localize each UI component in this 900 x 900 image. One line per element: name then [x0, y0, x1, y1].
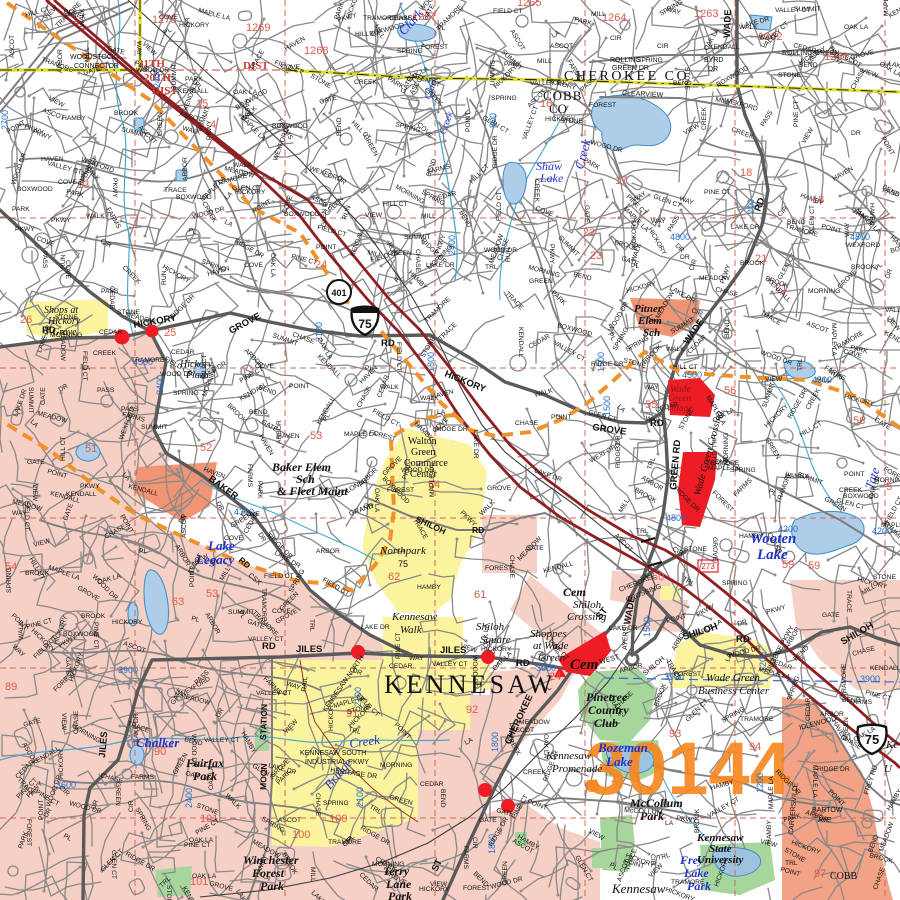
svg-text:ARBOR: ARBOR — [276, 420, 283, 444]
svg-text:PINE CT: PINE CT — [395, 633, 402, 659]
svg-text:COVE: COVE — [244, 262, 263, 269]
svg-text:RIDGE DR: RIDGE DR — [435, 426, 468, 433]
svg-text:51: 51 — [85, 443, 97, 455]
svg-text:BOXWOOD: BOXWOOD — [176, 194, 212, 201]
svg-text:PARK: PARK — [256, 481, 263, 499]
svg-text:HILL CT: HILL CT — [710, 435, 717, 460]
svg-text:SPRING: SPRING — [173, 390, 199, 397]
svg-text:GREEN: GREEN — [114, 782, 121, 806]
svg-text:KENDALL: KENDALL — [517, 327, 524, 358]
svg-text:Shoppes: Shoppes — [530, 628, 567, 640]
svg-text:Cem: Cem — [570, 657, 598, 673]
svg-text:STONE: STONE — [684, 546, 707, 553]
svg-text:1200: 1200 — [755, 773, 765, 793]
svg-text:Bozeman: Bozeman — [597, 740, 648, 755]
svg-text:CIR: CIR — [657, 43, 669, 50]
svg-text:VIEW: VIEW — [60, 713, 67, 731]
svg-text:SPRING: SPRING — [6, 567, 13, 593]
svg-text:17: 17 — [615, 175, 627, 187]
svg-text:MILL: MILL — [816, 377, 831, 384]
svg-text:GREEN DR: GREEN DR — [612, 65, 649, 72]
svg-text:MORNING: MORNING — [723, 433, 730, 465]
svg-text:MILL: MILL — [591, 11, 606, 18]
svg-text:PKWY: PKWY — [15, 226, 35, 233]
svg-text:TRL: TRL — [485, 264, 498, 271]
svg-text:RD: RD — [736, 634, 750, 645]
svg-text:POINT: POINT — [189, 567, 196, 587]
svg-text:Wade Green: Wade Green — [706, 672, 760, 684]
svg-text:HICKORY: HICKORY — [419, 886, 450, 893]
svg-text:18: 18 — [740, 167, 752, 179]
svg-text:MAPLE LA: MAPLE LA — [429, 464, 436, 497]
svg-text:1263: 1263 — [694, 8, 718, 20]
svg-text:BEND: BEND — [724, 319, 731, 338]
svg-text:100: 100 — [292, 829, 310, 841]
svg-text:SUMMIT: SUMMIT — [141, 424, 167, 431]
svg-text:BEND: BEND — [799, 62, 818, 69]
svg-text:HILL CT: HILL CT — [355, 31, 380, 38]
svg-text:MEADOW: MEADOW — [519, 719, 551, 726]
svg-text:WAY: WAY — [409, 655, 424, 662]
svg-text:MEADOW: MEADOW — [699, 275, 731, 282]
svg-text:STATION: STATION — [258, 704, 269, 740]
svg-text:GATE: GATE — [40, 387, 47, 405]
svg-text:BROOK: BROOK — [851, 264, 876, 271]
svg-text:COBB: COBB — [830, 871, 858, 882]
svg-text:DR: DR — [364, 503, 374, 510]
svg-text:TRL: TRL — [308, 619, 315, 632]
svg-text:MAPLE LA: MAPLE LA — [708, 465, 741, 472]
svg-text:FIELD CT: FIELD CT — [264, 573, 294, 580]
svg-text:SUMMIT: SUMMIT — [404, 234, 430, 241]
svg-text:ARBOR: ARBOR — [316, 548, 340, 555]
svg-text:1500: 1500 — [642, 617, 652, 637]
svg-text:MAPLE LA: MAPLE LA — [768, 776, 775, 809]
svg-text:WALK: WALK — [233, 162, 252, 169]
svg-text:CIR: CIR — [610, 35, 622, 42]
svg-text:2400: 2400 — [184, 788, 194, 808]
svg-text:WALK: WALK — [86, 213, 105, 220]
svg-text:VIEW: VIEW — [31, 484, 38, 502]
svg-text:200: 200 — [746, 199, 756, 214]
svg-text:MAPLE LA: MAPLE LA — [883, 0, 890, 16]
svg-text:VALLEY CT: VALLEY CT — [432, 661, 467, 668]
svg-text:SUMMIT: SUMMIT — [27, 387, 34, 413]
svg-text:LAKE DR: LAKE DR — [133, 713, 140, 742]
svg-text:MILL: MILL — [84, 47, 91, 62]
svg-text:WAY: WAY — [844, 222, 851, 237]
svg-text:WOOD DR: WOOD DR — [190, 734, 197, 767]
svg-text:23: 23 — [590, 250, 602, 262]
svg-text:Ke: Ke — [885, 739, 898, 751]
svg-text:56: 56 — [853, 415, 865, 427]
svg-text:WEXFORD: WEXFORD — [846, 242, 880, 249]
svg-text:1800: 1800 — [490, 732, 500, 752]
svg-text:PINE CT: PINE CT — [184, 842, 210, 849]
svg-text:GLEN CT: GLEN CT — [809, 205, 816, 234]
svg-text:LAKE DR: LAKE DR — [361, 624, 390, 631]
svg-text:KENDALL: KENDALL — [709, 44, 740, 51]
svg-text:HILL CT: HILL CT — [383, 201, 408, 208]
svg-text:OAK LA: OAK LA — [542, 734, 549, 759]
svg-text:COVE: COVE — [159, 14, 178, 21]
svg-text:GATE: GATE — [27, 459, 45, 466]
svg-text:FARMS: FARMS — [246, 464, 253, 488]
svg-text:4800: 4800 — [670, 232, 690, 242]
svg-text:59: 59 — [808, 560, 820, 572]
svg-text:OAK LA: OAK LA — [483, 623, 490, 648]
svg-text:WOODSTOCK: WOODSTOCK — [70, 54, 117, 61]
svg-text:FOREST: FOREST — [421, 44, 448, 51]
svg-text:RIDGE DR: RIDGE DR — [817, 766, 850, 773]
svg-text:RIDGE DR: RIDGE DR — [591, 361, 624, 368]
svg-text:DR: DR — [708, 66, 718, 73]
svg-text:ARBOR: ARBOR — [182, 157, 189, 181]
svg-text:HICKORY: HICKORY — [58, 748, 65, 779]
svg-text:COVE: COVE — [281, 64, 300, 71]
svg-text:59: 59 — [782, 559, 794, 571]
svg-text:90: 90 — [154, 746, 166, 758]
svg-text:BOXWOOD: BOXWOOD — [17, 186, 53, 193]
svg-text:53: 53 — [310, 430, 322, 442]
svg-text:HILL CT: HILL CT — [60, 436, 67, 461]
svg-text:RD: RD — [516, 658, 530, 669]
svg-text:PINE CT: PINE CT — [704, 189, 730, 196]
svg-text:PKWY: PKWY — [548, 244, 555, 264]
svg-text:3900: 3900 — [536, 663, 556, 673]
svg-text:POINT: POINT — [289, 383, 309, 390]
svg-text:TRACE: TRACE — [164, 187, 187, 194]
svg-text:CREEK: CREEK — [93, 350, 117, 357]
svg-text:SPRING: SPRING — [722, 580, 748, 587]
svg-text:BROOK: BROOK — [740, 260, 765, 267]
svg-text:CHASE: CHASE — [414, 249, 421, 273]
svg-text:CIR: CIR — [471, 837, 478, 849]
svg-text:1269: 1269 — [246, 22, 270, 34]
svg-text:MORNING: MORNING — [380, 762, 412, 769]
svg-text:Lake: Lake — [539, 171, 564, 185]
svg-text:CREEK: CREEK — [701, 106, 708, 130]
svg-text:STONE: STONE — [560, 118, 583, 125]
svg-text:PINE CT: PINE CT — [793, 101, 800, 127]
svg-text:401: 401 — [331, 288, 346, 298]
svg-text:Promenade: Promenade — [551, 763, 602, 775]
svg-text:CHASE: CHASE — [389, 15, 413, 22]
svg-text:WADE: WADE — [722, 9, 734, 38]
svg-text:OAK LA: OAK LA — [233, 89, 258, 96]
svg-text:FOREST: FOREST — [485, 565, 512, 572]
svg-text:KENDALL: KENDALL — [870, 665, 900, 672]
svg-text:CEDAR: CEDAR — [171, 349, 195, 356]
svg-text:VALLEY CT: VALLEY CT — [248, 636, 283, 643]
svg-text:STONE: STONE — [873, 574, 896, 581]
svg-text:52: 52 — [200, 442, 212, 454]
svg-text:3900: 3900 — [860, 674, 880, 684]
svg-text:BROOK: BROOK — [694, 808, 701, 833]
svg-text:ASCOT: ASCOT — [550, 43, 573, 50]
svg-text:DR: DR — [851, 130, 861, 137]
svg-text:TRAMORE: TRAMORE — [841, 663, 848, 697]
svg-text:56: 56 — [724, 385, 736, 397]
svg-text:61: 61 — [474, 589, 486, 601]
svg-text:OAK LA: OAK LA — [844, 24, 869, 31]
svg-text:OAK LA: OAK LA — [373, 488, 380, 513]
svg-text:LAKE DR: LAKE DR — [472, 430, 479, 459]
svg-text:MILL: MILL — [309, 867, 316, 882]
svg-text:22: 22 — [583, 227, 595, 239]
svg-text:PKWY: PKWY — [111, 178, 118, 198]
svg-text:KENDALL: KENDALL — [66, 491, 97, 498]
svg-text:PKWY: PKWY — [206, 120, 213, 140]
svg-text:STONE: STONE — [165, 885, 172, 900]
svg-text:4800: 4800 — [666, 513, 686, 523]
svg-text:BEND: BEND — [787, 219, 806, 226]
svg-text:MORNING: MORNING — [372, 861, 404, 868]
svg-text:BOXWOOD: BOXWOOD — [272, 123, 308, 130]
svg-text:WALK: WALK — [420, 395, 439, 402]
svg-text:MORNING: MORNING — [808, 288, 840, 295]
svg-text:16: 16 — [540, 98, 552, 110]
svg-text:LA: LA — [437, 409, 446, 416]
svg-text:SUMMIT: SUMMIT — [488, 60, 495, 86]
svg-text:MAPLE LA: MAPLE LA — [830, 323, 837, 356]
svg-text:Club: Club — [594, 716, 618, 730]
svg-text:WAY: WAY — [135, 41, 142, 56]
svg-text:WALK: WALK — [666, 346, 685, 353]
svg-text:SPRING: SPRING — [491, 95, 517, 102]
svg-text:62: 62 — [388, 571, 400, 583]
svg-text:VALLEY CT: VALLEY CT — [775, 7, 810, 14]
svg-text:CEDAR: CEDAR — [99, 329, 123, 336]
svg-text:273: 273 — [701, 562, 715, 571]
svg-text:Kennesaw: Kennesaw — [611, 881, 666, 896]
svg-text:FIELD CT: FIELD CT — [23, 501, 30, 531]
svg-text:BYRD: BYRD — [704, 57, 723, 64]
svg-text:Park: Park — [260, 879, 284, 893]
svg-text:LAKE DR: LAKE DR — [731, 224, 760, 231]
svg-text:GLEN CT: GLEN CT — [232, 185, 261, 192]
svg-text:BEND: BEND — [439, 789, 446, 808]
svg-text:Lake: Lake — [605, 754, 633, 769]
svg-text:Park: Park — [388, 889, 412, 900]
svg-text:WAY: WAY — [651, 218, 666, 225]
svg-text:INDUSTRIAL PKWY: INDUSTRIAL PKWY — [305, 759, 369, 766]
svg-text:VALLEY CT: VALLEY CT — [256, 690, 291, 697]
svg-text:CEDAR: CEDAR — [420, 781, 444, 788]
svg-text:ASCOT: ASCOT — [9, 35, 16, 58]
svg-text:WOOD DR: WOOD DR — [471, 655, 478, 688]
svg-text:2100: 2100 — [355, 787, 365, 807]
svg-text:PASS: PASS — [97, 387, 115, 394]
svg-text:PKWY: PKWY — [80, 483, 100, 490]
svg-text:TRAMORE: TRAMORE — [671, 879, 705, 886]
svg-text:CREEK: CREEK — [523, 769, 547, 776]
svg-text:CIR: CIR — [128, 800, 135, 812]
svg-text:WALK: WALK — [18, 621, 25, 640]
svg-text:WALK: WALK — [739, 24, 758, 31]
svg-text:SPRING: SPRING — [323, 800, 349, 807]
svg-text:SUMMIT: SUMMIT — [171, 64, 178, 90]
svg-text:GROVE: GROVE — [711, 537, 718, 562]
svg-text:WAY: WAY — [644, 384, 659, 391]
svg-text:FOREST: FOREST — [589, 102, 616, 109]
svg-text:TRACE: TRACE — [845, 590, 852, 613]
svg-text:VIEW: VIEW — [365, 212, 383, 219]
svg-text:ASCOT: ASCOT — [278, 817, 301, 824]
svg-text:CHASE: CHASE — [314, 793, 321, 817]
svg-text:GROVE: GROVE — [487, 485, 512, 492]
svg-text:97: 97 — [814, 868, 826, 880]
svg-text:93: 93 — [669, 728, 681, 740]
svg-text:60: 60 — [652, 571, 664, 583]
svg-text:LA: LA — [82, 365, 91, 372]
svg-text:FARMS: FARMS — [462, 846, 469, 870]
svg-text:OAK LA: OAK LA — [192, 873, 217, 880]
svg-text:100: 100 — [329, 813, 347, 825]
svg-text:Green: Green — [411, 447, 435, 458]
svg-text:BEND: BEND — [336, 117, 343, 136]
svg-text:TRL: TRL — [797, 358, 804, 371]
svg-text:ARBOR: ARBOR — [57, 49, 64, 73]
svg-text:FOREST: FOREST — [463, 885, 490, 892]
svg-text:HICKORY: HICKORY — [112, 619, 143, 626]
svg-text:GATE: GATE — [479, 817, 497, 824]
svg-text:RAIL: RAIL — [301, 676, 309, 692]
svg-text:63: 63 — [172, 596, 184, 608]
svg-text:POINT: POINT — [844, 471, 864, 478]
svg-text:4800: 4800 — [850, 232, 870, 242]
svg-text:BROOK: BROOK — [114, 110, 139, 117]
svg-text:75: 75 — [398, 559, 408, 569]
svg-text:HILL CT: HILL CT — [201, 354, 208, 379]
svg-text:POINT: POINT — [551, 414, 571, 421]
svg-text:RIDGE DR: RIDGE DR — [492, 135, 499, 168]
svg-text:TRAMORE: TRAMORE — [131, 357, 165, 364]
svg-text:Walk: Walk — [400, 624, 423, 636]
svg-text:DR: DR — [680, 254, 690, 261]
svg-text:LA: LA — [665, 820, 674, 827]
svg-text:HAMBY: HAMBY — [417, 584, 441, 591]
svg-text:LAKE DR: LAKE DR — [609, 625, 638, 632]
svg-text:MAPLE LA: MAPLE LA — [344, 431, 377, 438]
svg-text:MEADOW: MEADOW — [59, 330, 66, 362]
svg-text:HAMBY: HAMBY — [62, 115, 86, 122]
svg-text:ARBOR: ARBOR — [820, 711, 844, 718]
svg-text:FIELD CT: FIELD CT — [493, 8, 523, 15]
svg-text:4500: 4500 — [682, 370, 702, 380]
svg-text:CEDAR: CEDAR — [805, 697, 812, 721]
svg-text:3900: 3900 — [118, 665, 138, 675]
svg-text:JILES: JILES — [296, 644, 322, 655]
svg-text:COVE: COVE — [58, 179, 77, 186]
svg-text:U: U — [884, 763, 893, 775]
svg-text:PKWY: PKWY — [51, 217, 71, 224]
svg-text:PARK: PARK — [504, 61, 522, 68]
svg-text:OAK LA: OAK LA — [269, 253, 276, 278]
svg-text:POINT: POINT — [316, 244, 336, 251]
svg-text:CIR: CIR — [649, 854, 656, 866]
svg-text:MAPLE LA: MAPLE LA — [811, 765, 818, 798]
svg-text:LA: LA — [887, 317, 896, 324]
svg-text:PARK: PARK — [185, 76, 203, 83]
svg-text:GREEN: GREEN — [157, 112, 164, 136]
svg-text:SPRING: SPRING — [637, 57, 663, 64]
svg-text:GATE: GATE — [583, 205, 590, 223]
svg-text:Shiloh: Shiloh — [573, 599, 602, 611]
svg-text:92: 92 — [466, 704, 478, 716]
svg-text:1268: 1268 — [304, 45, 328, 57]
svg-text:PL: PL — [139, 548, 147, 555]
svg-text:SPRING: SPRING — [397, 48, 423, 55]
svg-text:PARK: PARK — [12, 206, 30, 213]
svg-text:25: 25 — [164, 327, 176, 339]
svg-text:26: 26 — [20, 314, 32, 326]
svg-text:CEDAR: CEDAR — [389, 663, 413, 670]
svg-text:VALLEY CT: VALLEY CT — [204, 737, 239, 744]
svg-text:STONE: STONE — [778, 72, 801, 79]
svg-text:CEDAR: CEDAR — [108, 286, 115, 310]
svg-text:CHASE: CHASE — [515, 420, 539, 427]
svg-text:GATE: GATE — [526, 545, 544, 552]
svg-text:BOXWOOD: BOXWOOD — [284, 211, 320, 218]
svg-text:4200: 4200 — [778, 524, 798, 534]
svg-text:COVE: COVE — [255, 363, 274, 370]
svg-text:RD: RD — [381, 338, 395, 349]
svg-text:ASCOT: ASCOT — [511, 727, 534, 734]
svg-text:GREEN: GREEN — [529, 278, 553, 285]
svg-text:BOXWOOD: BOXWOOD — [843, 493, 879, 500]
svg-text:GATE: GATE — [822, 612, 840, 619]
svg-text:MILL: MILL — [421, 213, 436, 220]
svg-text:WALK: WALK — [79, 8, 86, 27]
svg-text:HAMBY: HAMBY — [739, 533, 763, 540]
svg-text:MILL: MILL — [537, 58, 552, 65]
svg-text:BEND: BEND — [842, 697, 861, 704]
svg-text:94: 94 — [749, 741, 761, 753]
svg-text:Northpark: Northpark — [379, 545, 427, 557]
svg-text:CREEK: CREEK — [533, 179, 540, 203]
svg-text:PASS: PASS — [41, 251, 48, 269]
svg-text:Lake: Lake — [683, 866, 709, 880]
svg-text:JILES: JILES — [97, 731, 110, 758]
svg-text:BOXWOOD: BOXWOOD — [63, 631, 99, 638]
svg-text:TRL: TRL — [636, 528, 649, 535]
svg-text:COVE: COVE — [64, 260, 71, 279]
svg-text:POINT: POINT — [38, 800, 45, 820]
svg-text:VALLEY CT: VALLEY CT — [530, 80, 565, 87]
svg-text:COVE: COVE — [272, 608, 291, 615]
svg-text:Cem: Cem — [563, 585, 586, 599]
svg-text:FIELD CT: FIELD CT — [395, 342, 402, 372]
svg-text:VALLEY CT: VALLEY CT — [885, 307, 900, 314]
svg-text:RIDGE DR: RIDGE DR — [615, 435, 622, 468]
svg-text:53: 53 — [206, 588, 218, 600]
svg-text:FARMS: FARMS — [131, 774, 155, 781]
svg-text:VIEW: VIEW — [765, 376, 783, 383]
svg-text:KENNESAW SOUTH: KENNESAW SOUTH — [300, 750, 366, 757]
svg-text:PL: PL — [437, 25, 445, 32]
svg-text:BEND: BEND — [673, 80, 692, 87]
svg-text:HILL CT: HILL CT — [673, 364, 698, 371]
svg-text:FIELD CT: FIELD CT — [496, 191, 503, 221]
svg-text:POINT: POINT — [465, 112, 472, 132]
svg-text:75: 75 — [358, 317, 372, 331]
svg-text:TRAMORE: TRAMORE — [740, 716, 774, 723]
svg-text:COVE: COVE — [224, 535, 243, 542]
svg-text:BEND: BEND — [249, 409, 268, 416]
svg-text:Kennesaw: Kennesaw — [391, 611, 438, 623]
svg-text:89: 89 — [5, 681, 17, 693]
